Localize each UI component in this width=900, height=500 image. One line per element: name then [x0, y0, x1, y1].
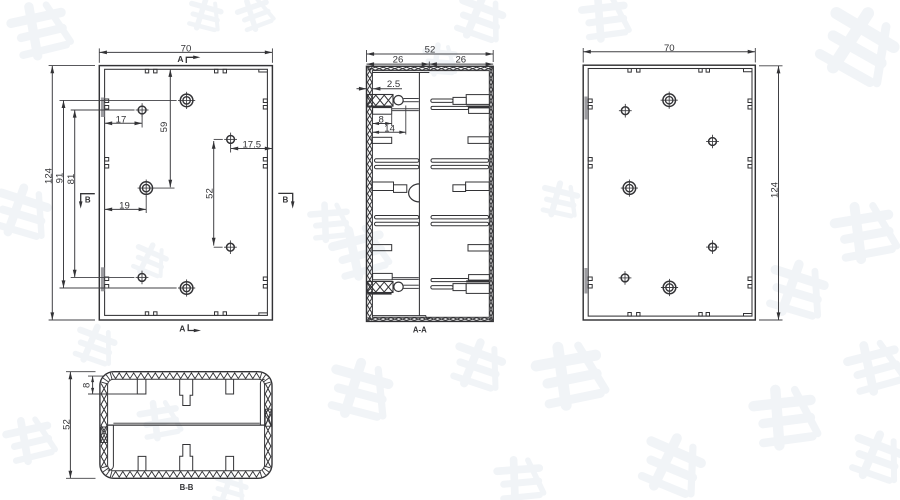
svg-text:52: 52 — [61, 419, 72, 430]
svg-text:59: 59 — [159, 122, 170, 133]
svg-text:8: 8 — [379, 115, 384, 126]
svg-text:2.5: 2.5 — [387, 79, 400, 90]
svg-text:70: 70 — [664, 43, 675, 54]
svg-text:124: 124 — [770, 181, 781, 198]
svg-text:B: B — [283, 196, 289, 205]
svg-text:14: 14 — [384, 123, 395, 134]
svg-text:91: 91 — [55, 173, 66, 184]
svg-text:81: 81 — [66, 174, 77, 185]
svg-text:52: 52 — [205, 188, 216, 199]
svg-text:70: 70 — [181, 44, 192, 55]
svg-text:A-A: A-A — [413, 325, 427, 334]
svg-text:52: 52 — [425, 45, 436, 56]
svg-text:26: 26 — [393, 54, 404, 65]
svg-text:8: 8 — [81, 383, 92, 388]
svg-text:17: 17 — [116, 114, 127, 125]
svg-text:19: 19 — [119, 200, 130, 211]
svg-text:A: A — [177, 54, 183, 64]
svg-text:A: A — [179, 323, 185, 333]
svg-text:B-B: B-B — [180, 483, 194, 492]
svg-text:B: B — [85, 196, 91, 205]
svg-text:26: 26 — [455, 54, 466, 65]
svg-text:124: 124 — [43, 167, 54, 184]
svg-text:17.5: 17.5 — [242, 140, 261, 151]
